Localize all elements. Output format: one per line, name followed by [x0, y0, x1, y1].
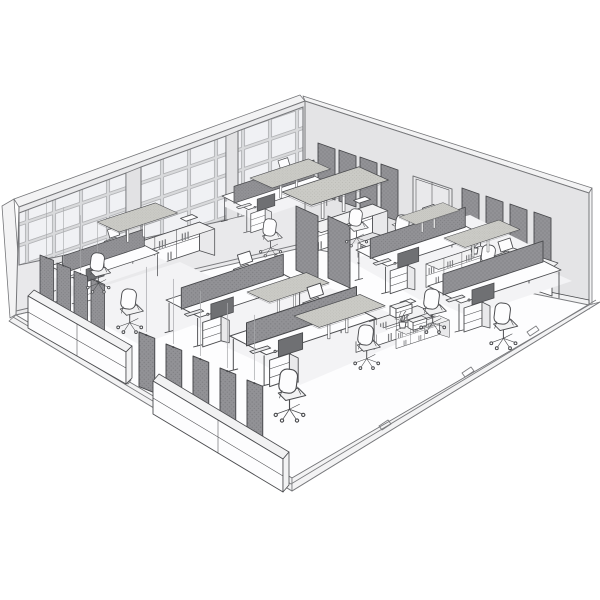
freestanding-screen	[296, 206, 318, 280]
freestanding-screen	[328, 216, 350, 288]
isometric-office-scene	[0, 0, 600, 600]
office-rendering-canvas: Open-plan office interior — monochrome i…	[0, 0, 600, 600]
